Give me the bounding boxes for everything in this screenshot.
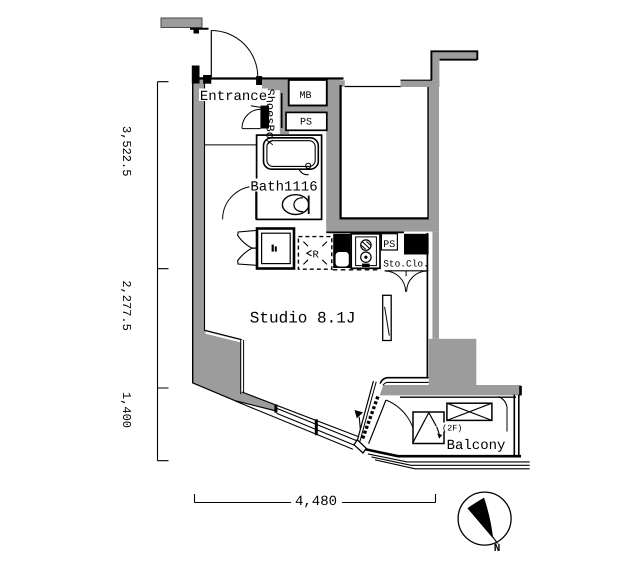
svg-text:Balcony: Balcony (447, 438, 506, 454)
svg-text:4,480: 4,480 (295, 494, 337, 510)
svg-text:MB: MB (300, 91, 312, 102)
svg-text:Entrance: Entrance (200, 89, 267, 105)
svg-text:N: N (494, 543, 501, 555)
svg-text:(2F): (2F) (442, 423, 462, 433)
svg-text:R: R (313, 250, 320, 262)
svg-text:PS: PS (383, 240, 395, 251)
svg-text:3,522.5: 3,522.5 (119, 126, 133, 176)
svg-text:2,277.5: 2,277.5 (119, 280, 133, 330)
svg-text:1,400: 1,400 (119, 392, 133, 428)
svg-text:Sto.Clo.: Sto.Clo. (383, 258, 429, 269)
svg-text:Studio 8.1J: Studio 8.1J (250, 310, 356, 328)
svg-text:Bath1116: Bath1116 (250, 179, 317, 195)
svg-text:PS: PS (300, 118, 312, 129)
